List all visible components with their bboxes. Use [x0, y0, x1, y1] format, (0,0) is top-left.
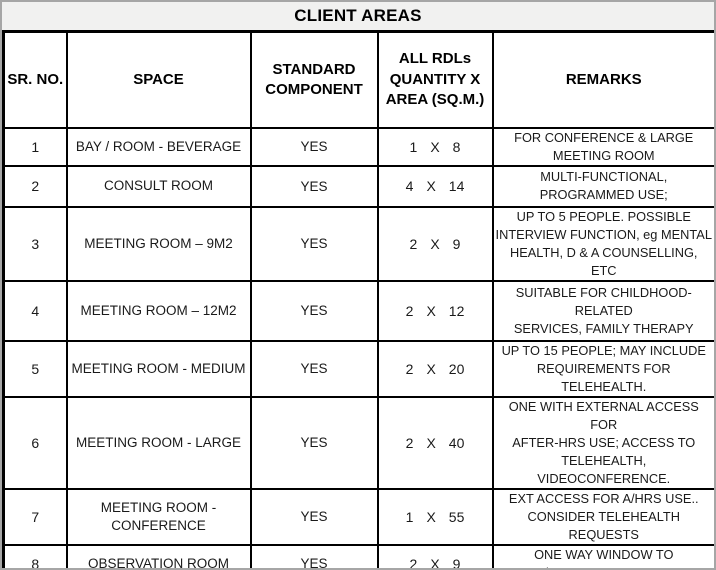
cell-standard-component: YES: [251, 207, 378, 281]
quantity-x-label: X: [430, 556, 439, 570]
cell-space: BAY / ROOM - BEVERAGE: [67, 128, 251, 166]
quantity-x-label: X: [426, 178, 435, 194]
cell-remarks: FOR CONFERENCE & LARGE MEETING ROOM: [493, 128, 716, 166]
quantity-value-group: 2 X 40: [381, 435, 490, 451]
column-header-quantity: ALL RDLs QUANTITY X AREA (SQ.M.): [378, 32, 493, 128]
quantity-x-label: X: [430, 236, 439, 252]
cell-sr-no: 3: [4, 207, 67, 281]
table-row: 4 MEETING ROOM – 12M2 YES 2 X 12 SUITABL…: [4, 281, 716, 341]
cell-space: MEETING ROOM - LARGE: [67, 397, 251, 489]
cell-remarks: EXT ACCESS FOR A/HRS USE.. CONSIDER TELE…: [493, 489, 716, 545]
table-title: CLIENT AREAS: [294, 6, 421, 26]
cell-quantity: 2 X 9: [378, 545, 493, 570]
quantity-count: 2: [406, 435, 414, 451]
column-header-remarks: REMARKS: [493, 32, 716, 128]
table-row: 5 MEETING ROOM - MEDIUM YES 2 X 20 UP TO…: [4, 341, 716, 397]
quantity-x-label: X: [426, 361, 435, 377]
cell-quantity: 4 X 14: [378, 166, 493, 207]
cell-space: MEETING ROOM – 12M2: [67, 281, 251, 341]
cell-remarks: ONE WAY WINDOW TO SMALL/MEDIUM MEETING R…: [493, 545, 716, 570]
quantity-count: 1: [410, 139, 418, 155]
table-row: 2 CONSULT ROOM YES 4 X 14 MULTI-FUNCTION…: [4, 166, 716, 207]
table-row: 6 MEETING ROOM - LARGE YES 2 X 40 ONE WI…: [4, 397, 716, 489]
quantity-value-group: 1 X 8: [381, 139, 490, 155]
table-row: 8 OBSERVATION ROOM YES 2 X 9 ONE WAY WIN…: [4, 545, 716, 570]
column-header-standard-component: STANDARD COMPONENT: [251, 32, 378, 128]
cell-sr-no: 4: [4, 281, 67, 341]
cell-standard-component: YES: [251, 166, 378, 207]
cell-quantity: 2 X 12: [378, 281, 493, 341]
quantity-count: 4: [406, 178, 414, 194]
quantity-value-group: 1 X 55: [381, 509, 490, 525]
quantity-value-group: 2 X 9: [381, 236, 490, 252]
quantity-area: 14: [449, 178, 465, 194]
cell-remarks: ONE WITH EXTERNAL ACCESS FOR AFTER-HRS U…: [493, 397, 716, 489]
cell-sr-no: 7: [4, 489, 67, 545]
quantity-area: 55: [449, 509, 465, 525]
cell-standard-component: YES: [251, 489, 378, 545]
cell-standard-component: YES: [251, 545, 378, 570]
quantity-x-label: X: [430, 139, 439, 155]
column-header-sr-no: SR. NO.: [4, 32, 67, 128]
cell-quantity: 1 X 55: [378, 489, 493, 545]
cell-space: MEETING ROOM – 9M2: [67, 207, 251, 281]
cell-space: MEETING ROOM - MEDIUM: [67, 341, 251, 397]
cell-sr-no: 6: [4, 397, 67, 489]
header-row: SR. NO. SPACE STANDARD COMPONENT ALL RDL…: [4, 32, 716, 128]
cell-standard-component: YES: [251, 397, 378, 489]
quantity-count: 2: [410, 556, 418, 570]
cell-space: MEETING ROOM - CONFERENCE: [67, 489, 251, 545]
quantity-area: 9: [453, 556, 461, 570]
cell-remarks: UP TO 5 PEOPLE. POSSIBLE INTERVIEW FUNCT…: [493, 207, 716, 281]
quantity-count: 1: [406, 509, 414, 525]
quantity-value-group: 4 X 14: [381, 178, 490, 194]
quantity-value-group: 2 X 12: [381, 303, 490, 319]
quantity-area: 40: [449, 435, 465, 451]
cell-sr-no: 8: [4, 545, 67, 570]
quantity-x-label: X: [426, 435, 435, 451]
quantity-value-group: 2 X 20: [381, 361, 490, 377]
cell-remarks: UP TO 15 PEOPLE; MAY INCLUDE REQUIREMENT…: [493, 341, 716, 397]
table-row: 7 MEETING ROOM - CONFERENCE YES 1 X 55 E…: [4, 489, 716, 545]
document-page: CLIENT AREAS SR. NO. SPACE STANDARD COMP…: [0, 0, 716, 570]
cell-quantity: 2 X 40: [378, 397, 493, 489]
quantity-count: 2: [406, 361, 414, 377]
quantity-area: 20: [449, 361, 465, 377]
cell-sr-no: 5: [4, 341, 67, 397]
cell-standard-component: YES: [251, 128, 378, 166]
table-title-bar: CLIENT AREAS: [2, 2, 714, 30]
cell-sr-no: 2: [4, 166, 67, 207]
quantity-count: 2: [406, 303, 414, 319]
quantity-count: 2: [410, 236, 418, 252]
table-row: 1 BAY / ROOM - BEVERAGE YES 1 X 8 FOR CO…: [4, 128, 716, 166]
cell-sr-no: 1: [4, 128, 67, 166]
quantity-x-label: X: [426, 303, 435, 319]
quantity-value-group: 2 X 9: [381, 556, 490, 570]
quantity-area: 12: [449, 303, 465, 319]
quantity-x-label: X: [426, 509, 435, 525]
cell-remarks: SUITABLE FOR CHILDHOOD-RELATED SERVICES,…: [493, 281, 716, 341]
cell-standard-component: YES: [251, 281, 378, 341]
client-areas-table: SR. NO. SPACE STANDARD COMPONENT ALL RDL…: [2, 30, 716, 570]
cell-quantity: 2 X 20: [378, 341, 493, 397]
cell-quantity: 1 X 8: [378, 128, 493, 166]
cell-standard-component: YES: [251, 341, 378, 397]
cell-remarks: MULTI-FUNCTIONAL, PROGRAMMED USE;: [493, 166, 716, 207]
quantity-area: 9: [453, 236, 461, 252]
quantity-area: 8: [453, 139, 461, 155]
cell-space: CONSULT ROOM: [67, 166, 251, 207]
cell-space: OBSERVATION ROOM: [67, 545, 251, 570]
column-header-space: SPACE: [67, 32, 251, 128]
cell-quantity: 2 X 9: [378, 207, 493, 281]
table-row: 3 MEETING ROOM – 9M2 YES 2 X 9 UP TO 5 P…: [4, 207, 716, 281]
